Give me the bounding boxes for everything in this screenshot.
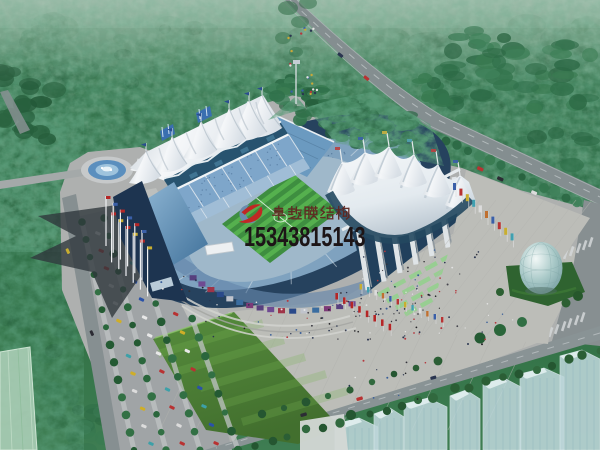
svg-text:15343815143: 15343815143 — [244, 222, 366, 253]
